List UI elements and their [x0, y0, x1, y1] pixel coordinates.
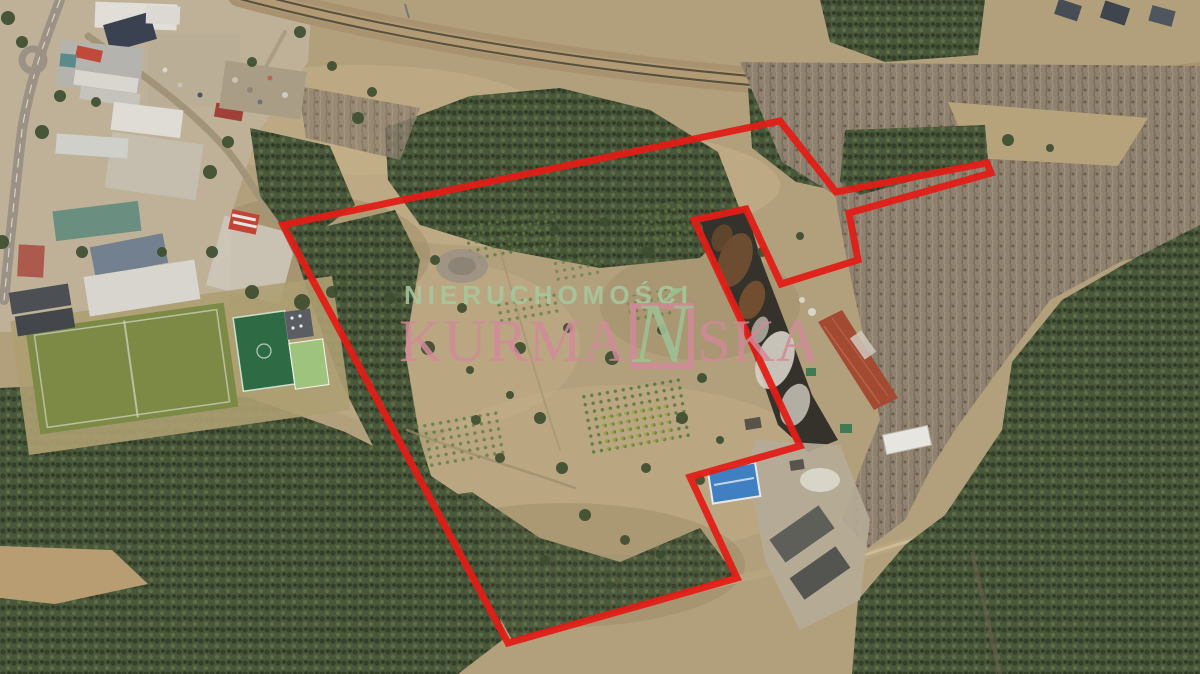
tree [656, 551, 664, 559]
tree [16, 36, 28, 48]
club-window [299, 324, 302, 327]
tree [222, 136, 234, 148]
aerial-photo: NIERUCHOMOŚCI KURMAŃSKA [0, 0, 1200, 674]
scrap-item [268, 76, 273, 81]
tree [1, 11, 15, 25]
tree [599, 217, 609, 227]
tree [327, 61, 337, 71]
tree [642, 246, 654, 258]
tree [54, 90, 66, 102]
aerial-photo-canvas [0, 0, 1200, 674]
tree [352, 112, 364, 124]
tree [247, 57, 257, 67]
scrap-item [258, 100, 263, 105]
tree [697, 373, 707, 383]
tree [206, 246, 218, 258]
club-window [298, 314, 301, 317]
tree [35, 125, 49, 139]
tree [1046, 144, 1054, 152]
silo-white [799, 297, 805, 303]
tree [606, 581, 614, 589]
vehicle [198, 93, 203, 98]
tree [326, 286, 338, 298]
tree [245, 285, 259, 299]
green-machine [840, 424, 852, 433]
tree [550, 225, 560, 235]
tree [556, 462, 568, 474]
tree [641, 463, 651, 473]
tree [384, 292, 396, 304]
tree [579, 509, 591, 521]
tree [367, 87, 377, 97]
tree [563, 323, 573, 333]
tree [294, 26, 306, 38]
scrap-item [247, 87, 253, 93]
turf-pitch [233, 311, 295, 392]
green-machine [806, 368, 816, 376]
rubble-white-patch [800, 468, 840, 492]
scrap-item [232, 77, 238, 83]
tree [466, 366, 474, 374]
tree [620, 535, 630, 545]
teal-shed [59, 53, 76, 68]
tree [716, 436, 724, 444]
tree [676, 412, 688, 424]
tree [157, 247, 167, 257]
scrap-item [282, 92, 288, 98]
tree [657, 325, 667, 335]
tree [506, 391, 514, 399]
club-building [284, 308, 314, 339]
club-window [291, 326, 294, 329]
vehicle [163, 68, 168, 73]
tree [430, 255, 440, 265]
apartment-red-roof [17, 244, 45, 277]
tree [294, 294, 310, 310]
tree [421, 341, 435, 355]
tree [534, 412, 546, 424]
tree [471, 415, 481, 425]
tree [605, 351, 619, 365]
tree [91, 97, 101, 107]
warehouse-white-small [146, 5, 181, 24]
tree [76, 246, 88, 258]
silo-white [808, 308, 816, 316]
tree [514, 342, 526, 354]
tree [1002, 134, 1014, 146]
sports-court [289, 339, 329, 389]
tree [457, 303, 467, 313]
club-window [290, 316, 293, 319]
tree [540, 555, 550, 565]
gray-mound-core [448, 257, 476, 275]
vehicle [178, 83, 183, 88]
tree [203, 165, 217, 179]
tree [796, 232, 804, 240]
tree [495, 453, 505, 463]
